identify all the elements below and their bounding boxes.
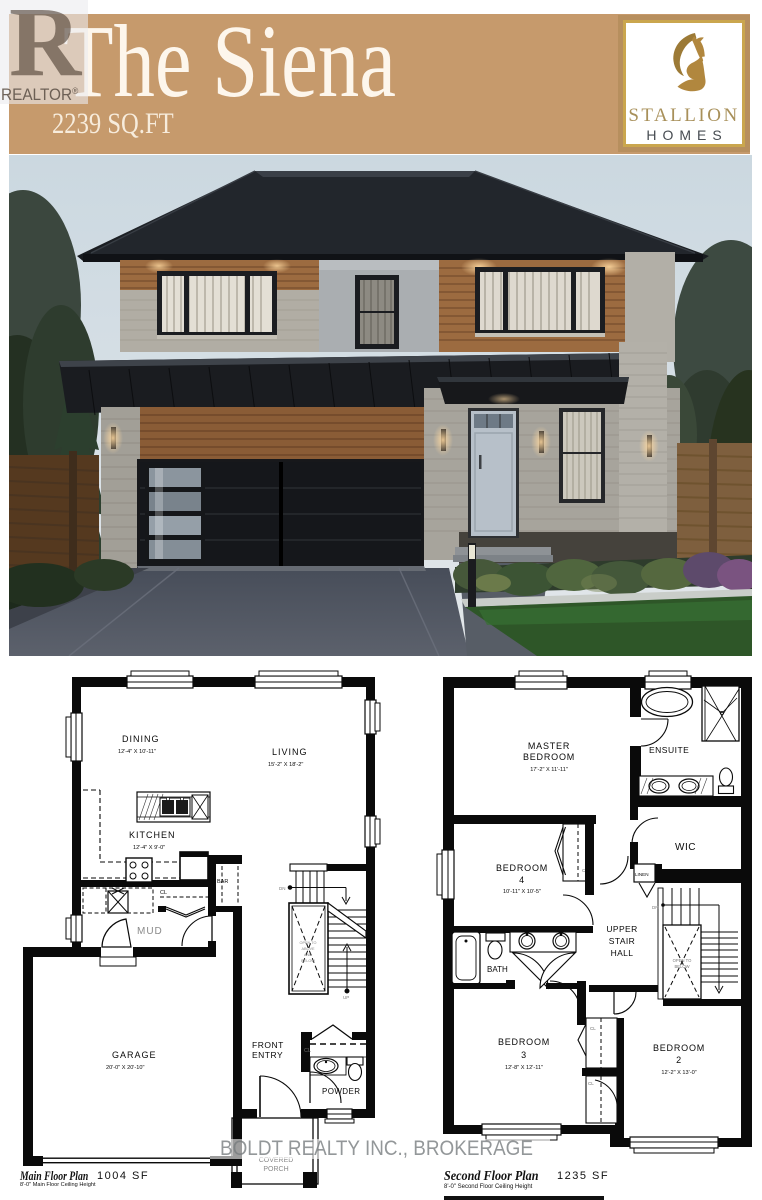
svg-text:12'-8" X 12'-11": 12'-8" X 12'-11" — [505, 1065, 543, 1071]
svg-text:CL: CL — [590, 1026, 596, 1031]
svg-text:BATH: BATH — [487, 965, 508, 974]
svg-text:AND: AND — [304, 953, 312, 957]
svg-text:DINING: DINING — [122, 734, 160, 744]
svg-text:2: 2 — [676, 1055, 682, 1065]
svg-text:12'-4" X 9'-0": 12'-4" X 9'-0" — [133, 845, 165, 851]
svg-text:UPPER: UPPER — [606, 924, 637, 934]
svg-text:GARAGE: GARAGE — [112, 1050, 157, 1060]
svg-text:LIVING: LIVING — [272, 747, 308, 757]
svg-text:17'-2" X 11'-11": 17'-2" X 11'-11" — [530, 767, 568, 773]
svg-text:LINEN: LINEN — [635, 872, 649, 877]
svg-text:FRONT: FRONT — [252, 1040, 284, 1050]
svg-text:OPEN TO: OPEN TO — [673, 958, 692, 963]
svg-text:BEDROOM: BEDROOM — [653, 1043, 705, 1053]
svg-text:CL: CL — [160, 890, 167, 896]
svg-text:WIC: WIC — [675, 842, 696, 853]
svg-text:POWDER: POWDER — [322, 1087, 360, 1096]
svg-text:12'-2" X 13'-0": 12'-2" X 13'-0" — [661, 1070, 696, 1076]
svg-text:MUD: MUD — [137, 926, 163, 937]
svg-text:CL: CL — [304, 1048, 311, 1054]
svg-text:BAR: BAR — [217, 879, 228, 885]
svg-text:10'-11" X 10'-5": 10'-11" X 10'-5" — [503, 889, 541, 895]
svg-text:MASTER: MASTER — [528, 741, 570, 751]
svg-text:UP: UP — [343, 995, 349, 1000]
svg-text:3: 3 — [521, 1050, 527, 1060]
svg-text:STAIR: STAIR — [609, 936, 635, 946]
svg-text:BELOW: BELOW — [301, 959, 315, 963]
svg-text:BELOW: BELOW — [674, 964, 689, 969]
svg-text:BEDROOM: BEDROOM — [523, 752, 575, 762]
svg-text:DN: DN — [652, 905, 659, 910]
svg-text:15'-2" X 18'-2": 15'-2" X 18'-2" — [268, 762, 303, 768]
svg-text:ENTRY: ENTRY — [252, 1050, 283, 1060]
svg-text:OPEN TO: OPEN TO — [300, 941, 317, 945]
svg-text:HALL: HALL — [611, 948, 634, 958]
svg-text:ABOVE: ABOVE — [301, 947, 315, 951]
svg-text:BEDROOM: BEDROOM — [496, 863, 548, 873]
svg-text:ENSUITE: ENSUITE — [649, 745, 689, 755]
svg-text:12'-4" X 10'-11": 12'-4" X 10'-11" — [118, 749, 156, 755]
svg-text:KITCHEN: KITCHEN — [129, 830, 176, 840]
svg-text:4: 4 — [519, 875, 525, 885]
svg-text:CL: CL — [588, 1081, 594, 1086]
svg-text:DN: DN — [279, 886, 286, 891]
svg-text:BEDROOM: BEDROOM — [498, 1037, 550, 1047]
svg-text:PORCH: PORCH — [263, 1166, 288, 1173]
svg-text:20'-0" X 20'-10": 20'-0" X 20'-10" — [106, 1065, 144, 1071]
